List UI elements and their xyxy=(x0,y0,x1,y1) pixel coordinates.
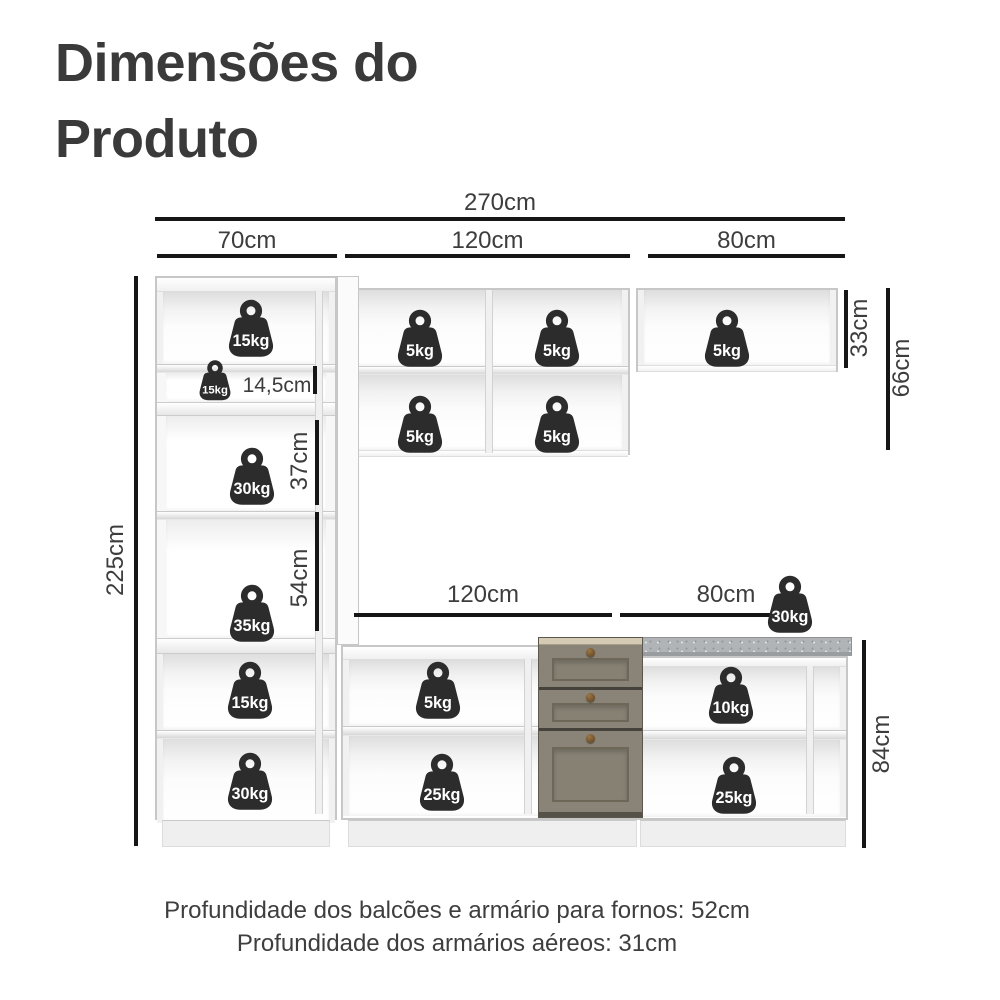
dim-total-height-label: 225cm xyxy=(102,490,130,630)
dim-open-niche-line xyxy=(315,512,319,631)
drawer-unit xyxy=(538,637,643,818)
weight-badge-base-mid-upper: 5kg xyxy=(408,660,468,724)
dim-base-mid-width-line xyxy=(354,613,612,617)
svg-text:25kg: 25kg xyxy=(424,786,461,804)
weight-badge-wall-mid-top-left: 5kg xyxy=(390,308,450,372)
svg-text:30kg: 30kg xyxy=(234,480,271,498)
weight-badge-wall-mid-bottom-left: 5kg xyxy=(390,394,450,458)
dim-total-width-line xyxy=(155,217,845,221)
weight-badge-tall-bottom: 30kg xyxy=(220,751,280,815)
plinth-middle xyxy=(348,820,637,847)
weight-badge-wall-mid-bottom-right: 5kg xyxy=(527,394,587,458)
drawer-unit-top-edge xyxy=(539,638,642,645)
dim-wall-mid-width-label: 120cm xyxy=(345,227,630,255)
weight-badge-countertop: 30kg xyxy=(760,574,820,638)
weight-badge-wall-mid-top-right: 5kg xyxy=(527,308,587,372)
svg-text:15kg: 15kg xyxy=(232,694,269,712)
drawer-knob xyxy=(586,734,595,743)
page-title: Dimensões do Produto xyxy=(55,26,418,177)
depth-notes: Profundidade dos balcões e armário para … xyxy=(107,894,807,960)
dim-wall-right-width-line xyxy=(648,254,845,258)
drawer-panel xyxy=(552,703,629,722)
dim-tall-width-line xyxy=(157,254,337,258)
weight-badge-tall-top: 15kg xyxy=(221,298,281,362)
dim-total-width-label: 270cm xyxy=(155,189,845,217)
plinth-left xyxy=(162,820,330,847)
drawer-1 xyxy=(539,645,642,687)
dim-wall-mid-width-line xyxy=(345,254,630,258)
svg-text:5kg: 5kg xyxy=(543,428,571,446)
wall-cabinet-middle-divider xyxy=(485,290,493,453)
dim-total-height-line xyxy=(134,276,138,846)
dim-base-mid-width-label: 120cm xyxy=(354,581,612,609)
page-title-line1: Dimensões do xyxy=(55,26,418,102)
tall-cabinet-top-panel xyxy=(157,278,335,292)
weight-badge-shelf-niche: 15kg xyxy=(194,359,236,404)
weight-badge-wall-right: 5kg xyxy=(697,308,757,372)
plinth-right xyxy=(640,820,846,847)
weight-badge-base-right-upper: 10kg xyxy=(701,665,761,729)
dim-wall-mid-height-label: 66cm xyxy=(888,298,916,438)
drawer-knob xyxy=(586,648,595,657)
wall-cabinet-middle xyxy=(345,288,630,455)
drawer-2 xyxy=(539,690,642,728)
drawer-3 xyxy=(539,731,642,812)
dim-wall-right-height-label: 33cm xyxy=(846,258,874,398)
dim-wall-right-width-label: 80cm xyxy=(648,227,845,255)
svg-text:30kg: 30kg xyxy=(772,608,809,626)
dim-base-height-line xyxy=(862,640,866,848)
svg-text:5kg: 5kg xyxy=(713,342,741,360)
weight-badge-oven-niche: 30kg xyxy=(222,446,282,510)
svg-text:5kg: 5kg xyxy=(406,342,434,360)
dim-oven-niche-line xyxy=(315,420,319,505)
svg-text:5kg: 5kg xyxy=(406,428,434,446)
shelf xyxy=(157,364,335,373)
svg-text:30kg: 30kg xyxy=(232,785,269,803)
svg-text:15kg: 15kg xyxy=(202,384,228,396)
drawer-panel xyxy=(552,658,629,681)
svg-text:35kg: 35kg xyxy=(234,617,271,635)
base-cabinet-middle-divider xyxy=(524,659,532,814)
page-title-line2: Produto xyxy=(55,102,418,178)
dim-shelf-niche-tick xyxy=(313,366,317,394)
depth-note-counters: Profundidade dos balcões e armário para … xyxy=(107,894,807,927)
weight-badge-open-niche: 35kg xyxy=(222,583,282,647)
weight-badge-base-mid-lower: 25kg xyxy=(412,752,472,816)
shelf xyxy=(157,730,335,739)
svg-text:5kg: 5kg xyxy=(424,694,452,712)
svg-text:15kg: 15kg xyxy=(233,332,270,350)
dim-tall-width-label: 70cm xyxy=(157,227,337,255)
svg-text:5kg: 5kg xyxy=(543,342,571,360)
weight-badge-tall-lower: 15kg xyxy=(220,660,280,724)
shelf xyxy=(635,730,846,740)
product-dimensions-diagram: Dimensões do Produto xyxy=(0,0,1000,1000)
dim-open-niche-label: 54cm xyxy=(286,508,314,648)
drawer-knob xyxy=(586,693,595,702)
dim-base-height-label: 84cm xyxy=(868,674,896,814)
depth-note-wall-cabinets: Profundidade dos armários aéreos: 31cm xyxy=(107,927,807,960)
base-cabinet-right-divider xyxy=(806,666,814,814)
svg-text:25kg: 25kg xyxy=(716,789,753,807)
drawer-unit-base xyxy=(539,812,642,817)
drawer-panel xyxy=(552,747,629,802)
svg-text:10kg: 10kg xyxy=(713,699,750,717)
countertop xyxy=(627,637,852,656)
weight-badge-base-right-lower: 25kg xyxy=(704,755,764,819)
